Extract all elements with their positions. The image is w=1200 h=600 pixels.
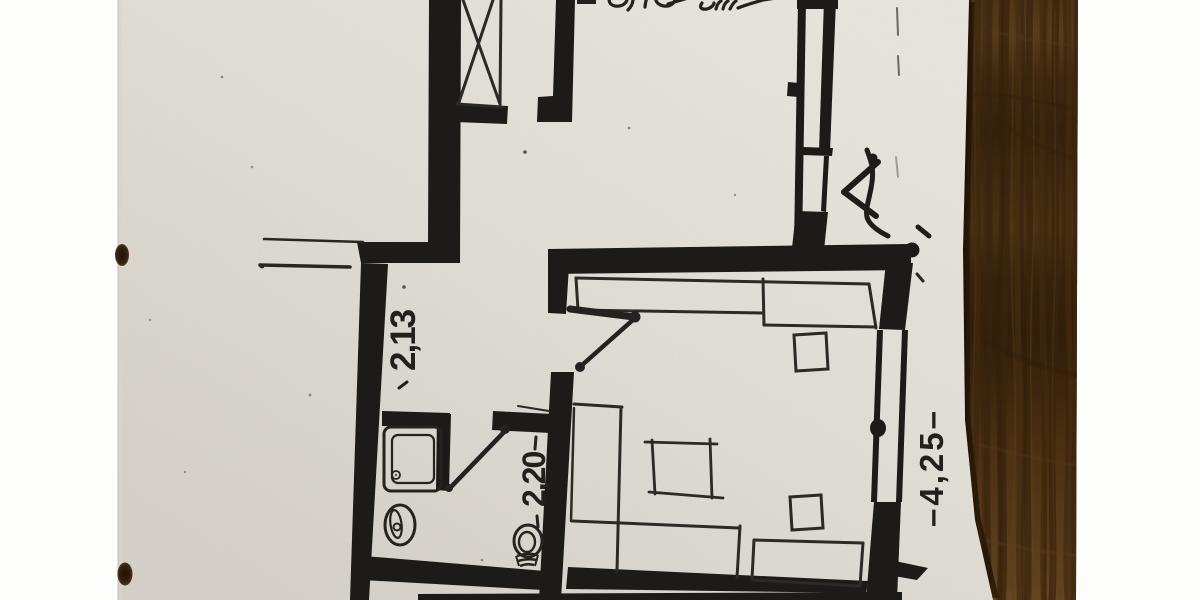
svg-text:2,13: 2,13 [384,309,423,371]
svg-text:2,20: 2,20 [516,452,552,507]
svg-text:–4,25–: –4,25– [913,408,950,527]
